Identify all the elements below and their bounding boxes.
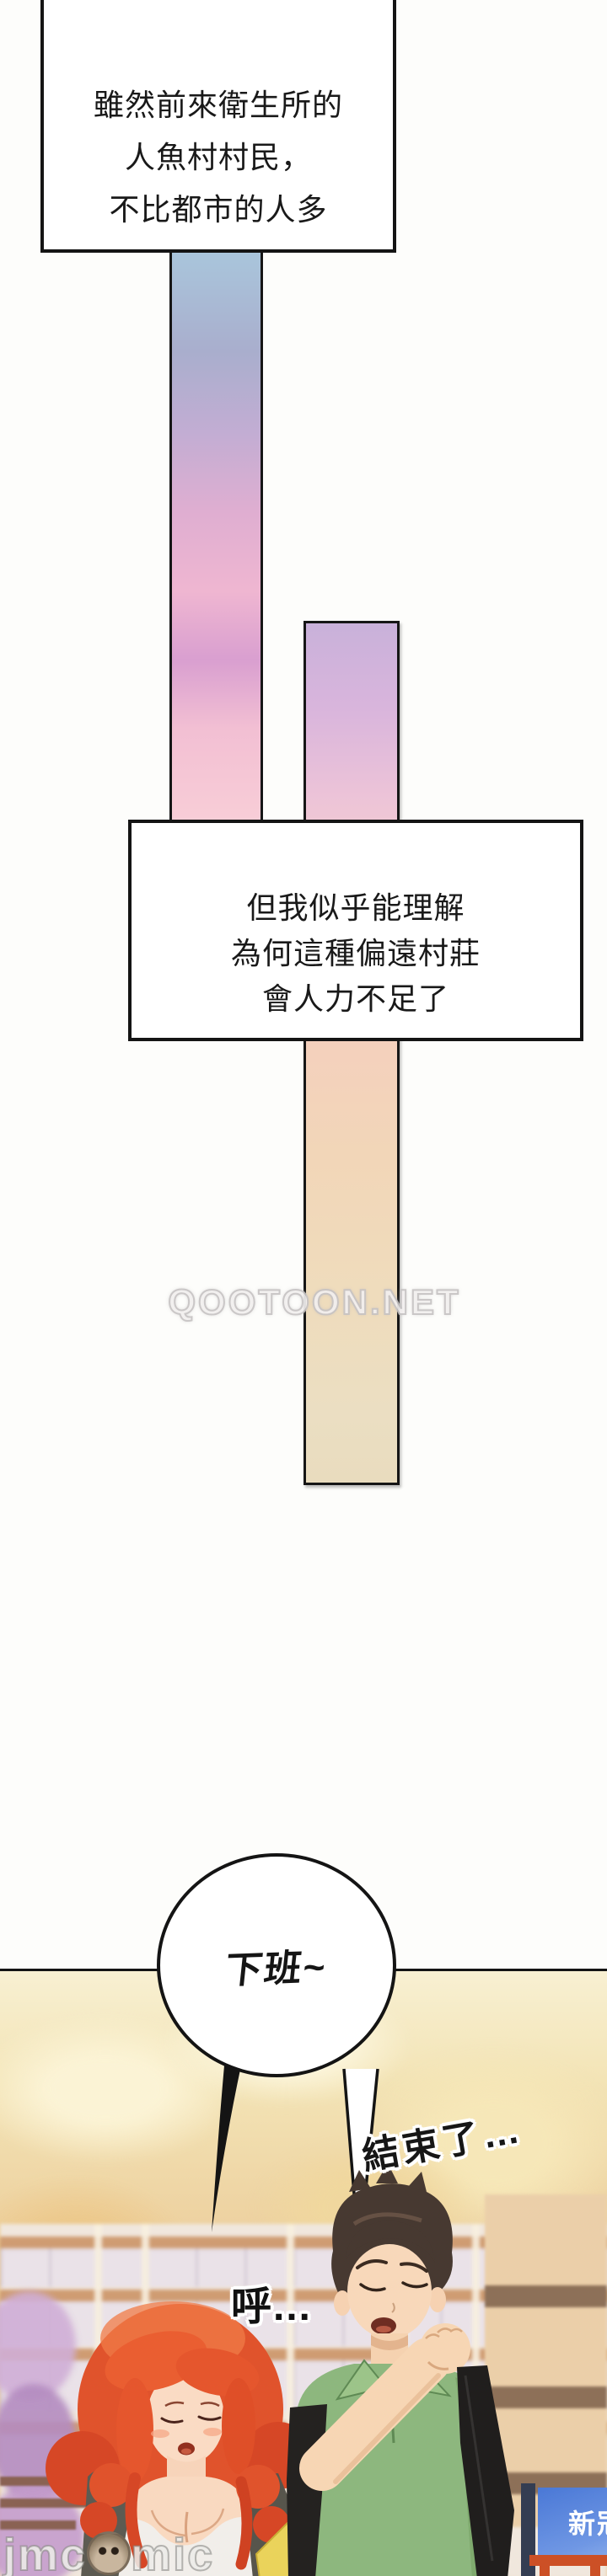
narration-line: 但我似乎能理解 [132,885,580,931]
comic-page: 雖然前來衛生所的 人魚村村民， 不比都市的人多 但我似乎能理解 為何這種偏遠村莊… [0,0,607,2576]
narration-text-1: 雖然前來衛生所的 人魚村村民， 不比都市的人多 [44,0,393,236]
narration-line: 人魚村村民， [44,131,393,184]
narration-text-2: 但我似乎能理解 為何這種偏遠村莊 會人力不足了 [132,823,580,1022]
narration-line: 為何這種偏遠村莊 [132,931,580,976]
narration-line: 會人力不足了 [132,976,580,1022]
narration-box-1: 雖然前來衛生所的 人魚村村民， 不比都市的人多 [40,0,396,253]
brand-watermark-prefix: jmc [3,2530,87,2576]
table-frame-leg [540,2566,550,2576]
sign-text: 新冠 [568,2503,607,2541]
speech-bubble-text: 下班~ [223,1937,330,1994]
brand-watermark: jmcmic [3,2529,214,2576]
bubble-tail-left [212,2066,241,2232]
narration-box-2: 但我似乎能理解 為何這種偏遠村莊 會人力不足了 [128,820,583,1041]
site-watermark: QOOTOON.NET [126,1282,502,1323]
gradient-strip-2 [303,621,400,1485]
man-character [287,2163,514,2576]
sfx-text-sigh: 呼… [231,2273,312,2332]
blue-sign: 新冠 [538,2488,607,2557]
table-frame-leg [590,2566,600,2576]
brand-watermark-suffix: mic [131,2530,214,2576]
narration-line: 不比都市的人多 [44,184,393,236]
narration-line: 雖然前來衛生所的 [44,79,393,131]
speech-bubble: 下班~ [157,1853,396,2077]
gradient-strip-1 [169,249,263,822]
monkey-face-icon [87,2531,131,2575]
table-frame-bar [529,2555,607,2566]
